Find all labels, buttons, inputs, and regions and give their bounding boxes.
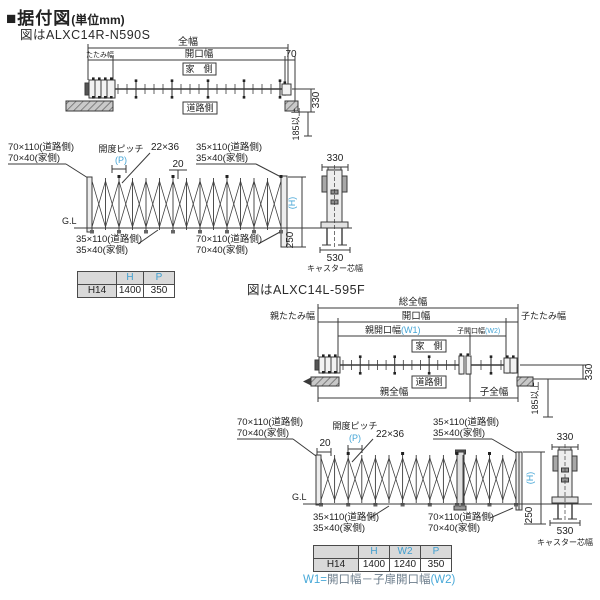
caster-dot: [359, 372, 362, 375]
stack-caster-dot: [98, 96, 101, 99]
stack-caster-dot: [92, 77, 95, 80]
fig2-child-lattice: [461, 452, 518, 507]
caster-dot: [243, 79, 246, 82]
fig2-child-total: 子全幅: [480, 386, 509, 398]
fig1-dim-185: 185以上: [291, 107, 301, 140]
stack-caster-dot: [328, 371, 331, 374]
stack-caster-dot: [110, 77, 113, 80]
fig1-dim-fold-width: たたみ幅: [86, 50, 114, 59]
fig2-side-530: 530: [557, 526, 574, 537]
mullion-cap: [347, 452, 350, 455]
fig1-label-br2: 70×40(家側): [196, 244, 248, 256]
caster-dot: [393, 372, 396, 375]
fig1-side-caster-right: [342, 176, 347, 192]
table-row: H P: [78, 272, 175, 285]
fig2-embed-dim: 250: [524, 506, 535, 523]
fig1-embed-dim: 250: [285, 231, 296, 248]
fig2-parent-opening: 親開口幅: [365, 324, 401, 335]
stack-caster-dot: [322, 371, 325, 374]
caster-dot: [490, 355, 493, 358]
fig2-side-caster-left: [553, 456, 558, 471]
fig2-label-tr1: 35×110(道路側): [433, 416, 499, 428]
mullion-cap: [172, 175, 175, 178]
stack-caster-dot: [98, 77, 101, 80]
fig1-top-gap: 20: [172, 159, 184, 170]
mullion-cap: [456, 452, 459, 455]
caster-dot: [207, 96, 210, 99]
fig1-dim-70: 70: [285, 49, 297, 60]
caster-dot: [279, 96, 282, 99]
fig1-dim-total-width: 全幅: [178, 35, 198, 48]
caster-dot: [393, 355, 396, 358]
fig1-left-wall: [66, 101, 113, 111]
fig2-side-view: [550, 444, 580, 526]
fig1-table-h-value: 1400: [117, 285, 144, 298]
caster-dot: [171, 96, 174, 99]
fig2-side-caster-right: [572, 456, 577, 471]
formula-body: 開口幅－子扉開口幅: [327, 574, 431, 586]
fig2-child-fold: 子たたみ幅: [521, 310, 566, 321]
fig1-side-view: [320, 164, 350, 253]
fig1-lattice-dim: 22×36: [151, 142, 180, 153]
fig1-left-post: [87, 177, 92, 232]
formula-w2: (W2): [430, 574, 455, 586]
caster-dot: [135, 96, 138, 99]
caster-dot: [171, 79, 174, 82]
fig2-elevation-labels: 70×110(道路側) 70×40(家側) 20 開度ピッチ (P) 22×36…: [237, 416, 535, 534]
mullion-cap: [488, 452, 491, 455]
stack-caster-dot: [104, 96, 107, 99]
fig1-road-side-label: 道路側: [186, 102, 213, 113]
fig2-joint-post: [459, 356, 464, 374]
fig1-table-header-0: [78, 272, 117, 285]
formula-w1: W1=: [303, 574, 327, 586]
mullion-cap: [226, 175, 229, 178]
fig1-label-bl1: 35×110(道路側): [76, 233, 142, 245]
fig2-table-header-w2: W2: [390, 546, 421, 559]
fig1-side-330: 330: [327, 153, 344, 164]
caster-dot: [135, 79, 138, 82]
fig2-pitch-p: (P): [349, 433, 361, 443]
stack-caster-dot: [322, 354, 325, 357]
lattice-foot: [252, 230, 256, 234]
fig2-table-w2-value: 1240: [390, 559, 421, 572]
fig2-dim-330: 330: [584, 363, 595, 380]
fig2-label-br1: 70×110(道路側): [428, 511, 494, 523]
fig2-table-model: H14: [314, 559, 359, 572]
fig2-wall-continue-arrow: [303, 378, 311, 386]
fig2-caster-label: キャスター芯幅: [537, 537, 593, 547]
fig2-stack-casters: [322, 353, 515, 374]
fig1-pitch-p: (P): [115, 155, 127, 165]
technical-drawing: 全幅 たたみ幅 開口幅 70 家 側 道路側 330 185以上 70×110(…: [0, 0, 600, 600]
table-row: H14 1400 350: [78, 285, 175, 298]
lattice-foot: [90, 230, 94, 234]
table-row: H W2 P: [314, 546, 452, 559]
fig1-label-bl2: 35×40(家側): [76, 244, 128, 256]
fig1-label-tr1: 35×110(道路側): [196, 141, 262, 153]
fig1-caster-label: キャスター芯幅: [307, 263, 363, 273]
fig2-house-side-label: 家 側: [415, 340, 442, 351]
caster-dot: [490, 372, 493, 375]
fig2-left-post: [316, 455, 321, 505]
fig2-dim-total: 総全幅: [399, 296, 428, 308]
fig2-gl-label: G.L: [292, 492, 307, 502]
stack-caster-dot: [110, 96, 113, 99]
caster-dot: [359, 355, 362, 358]
fig2-table-header-0: [314, 546, 359, 559]
fig1-pitch-label: 開度ピッチ: [98, 143, 143, 154]
fig1-dim-330: 330: [311, 91, 322, 108]
fig2-road-side-label: 道路側: [415, 376, 442, 387]
stack-caster-dot: [334, 354, 337, 357]
fig2-table-h-value: 1400: [359, 559, 390, 572]
fig2-parent-lattice: [319, 452, 459, 507]
caster-dot: [428, 372, 431, 375]
fig1-gl-label: G.L: [62, 216, 77, 226]
fig2-label-br2: 70×40(家側): [428, 522, 480, 534]
fig1-label-tl2: 70×40(家側): [8, 152, 60, 164]
fig2-pitch-label: 開度ピッチ: [332, 420, 377, 431]
stack-caster-dot: [92, 96, 95, 99]
lattice-foot: [225, 230, 229, 234]
fig2-w1-code: (W1): [401, 325, 421, 335]
fig2-table-p-value: 350: [421, 559, 452, 572]
fig2-child-opening: 子開口幅: [457, 326, 485, 335]
stack-caster-dot: [104, 77, 107, 80]
fig1-table-model: H14: [78, 285, 117, 298]
table-row: H14 1400 1240 350: [314, 559, 452, 572]
fig2-spec-table: H W2 P H14 1400 1240 350: [313, 545, 452, 572]
fig1-side-530: 530: [327, 253, 344, 264]
fig2-table-header-h: H: [359, 546, 390, 559]
fig2-elevation-view: [237, 439, 592, 524]
mullion-cap: [118, 175, 121, 178]
caster-dot: [428, 355, 431, 358]
mullion-cap: [401, 452, 404, 455]
fig2-label-tl2: 70×40(家側): [237, 427, 289, 439]
fig1-spec-table: H P H14 1400 350: [77, 271, 175, 298]
fig2-h-label: (H): [525, 472, 535, 485]
lattice-foot: [144, 230, 148, 234]
lattice-foot: [117, 230, 121, 234]
fig1-lattice: [90, 175, 283, 234]
fig2-top-gap: 20: [319, 438, 331, 449]
caster-dot: [279, 79, 282, 82]
installation-diagram-page: ■据付図(単位mm) 図はALXC14R-N590S 図はALXC14L-595…: [0, 0, 600, 600]
fig2-parent-total: 親全幅: [380, 386, 409, 398]
w1-formula-note: W1=開口幅－子扉開口幅(W2): [303, 571, 455, 587]
fig2-left-wall: [311, 377, 339, 386]
caster-dot: [207, 79, 210, 82]
fig1-label-tl1: 70×110(道路側): [8, 141, 74, 153]
fig2-w2-code: (W2): [485, 328, 500, 335]
fig2-lattice-dim: 22×36: [376, 429, 405, 440]
fig1-stack-casters: [92, 77, 286, 98]
stack-caster-dot: [334, 371, 337, 374]
fig1-table-header-h: H: [117, 272, 144, 285]
fig2-label-bl1: 35×110(道路側): [313, 511, 379, 523]
lattice-foot: [198, 230, 202, 234]
fig1-table-p-value: 350: [144, 285, 175, 298]
fig1-dim-opening-width: 開口幅: [185, 48, 214, 60]
fig2-parent-fold: 親たたみ幅: [270, 310, 315, 321]
caster-dot: [243, 96, 246, 99]
fig2-table-header-p: P: [421, 546, 452, 559]
fig1-table-header-p: P: [144, 272, 175, 285]
fig2-label-tr2: 35×40(家側): [433, 427, 485, 439]
fig1-label-br1: 70×110(道路側): [196, 233, 262, 245]
stack-caster-dot: [328, 354, 331, 357]
fig2-label-tl1: 70×110(道路側): [237, 416, 303, 428]
fig2-side-330: 330: [557, 432, 574, 443]
fig1-house-side-label: 家 側: [185, 63, 212, 74]
fig1-h-label: (H): [287, 197, 297, 210]
mullion-cap: [280, 175, 283, 178]
fig2-dim-185: 185以上: [530, 381, 540, 414]
fig1-side-caster-left: [322, 176, 327, 192]
fig2-opening: 開口幅: [402, 310, 431, 322]
fig2-label-bl2: 35×40(家側): [313, 522, 365, 534]
fig1-label-tr2: 35×40(家側): [196, 152, 248, 164]
fig2-plan-labels: 総全幅 親たたみ幅 開口幅 子たたみ幅 親開口幅 (W1) 子開口幅 (W2) …: [270, 296, 595, 415]
lattice-foot: [171, 230, 175, 234]
